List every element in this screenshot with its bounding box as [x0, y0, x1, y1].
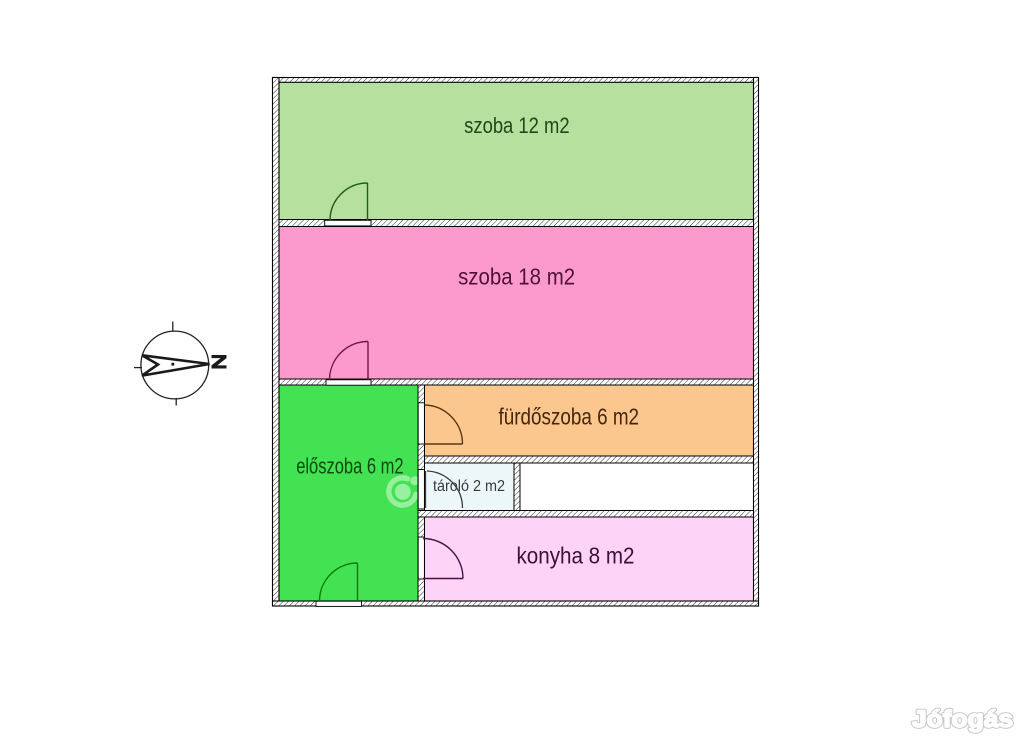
svg-text:tároló 2 m2: tároló 2 m2: [433, 478, 505, 495]
svg-text:fürdőszoba 6 m2: fürdőszoba 6 m2: [499, 404, 640, 430]
svg-text:szoba 12 m2: szoba 12 m2: [464, 113, 570, 138]
svg-text:szoba 18 m2: szoba 18 m2: [458, 264, 575, 290]
svg-text:konyha 8 m2: konyha 8 m2: [517, 543, 635, 569]
svg-text:Jófogás: Jófogás: [912, 706, 1013, 733]
svg-text:előszoba 6 m2: előszoba 6 m2: [296, 454, 403, 479]
